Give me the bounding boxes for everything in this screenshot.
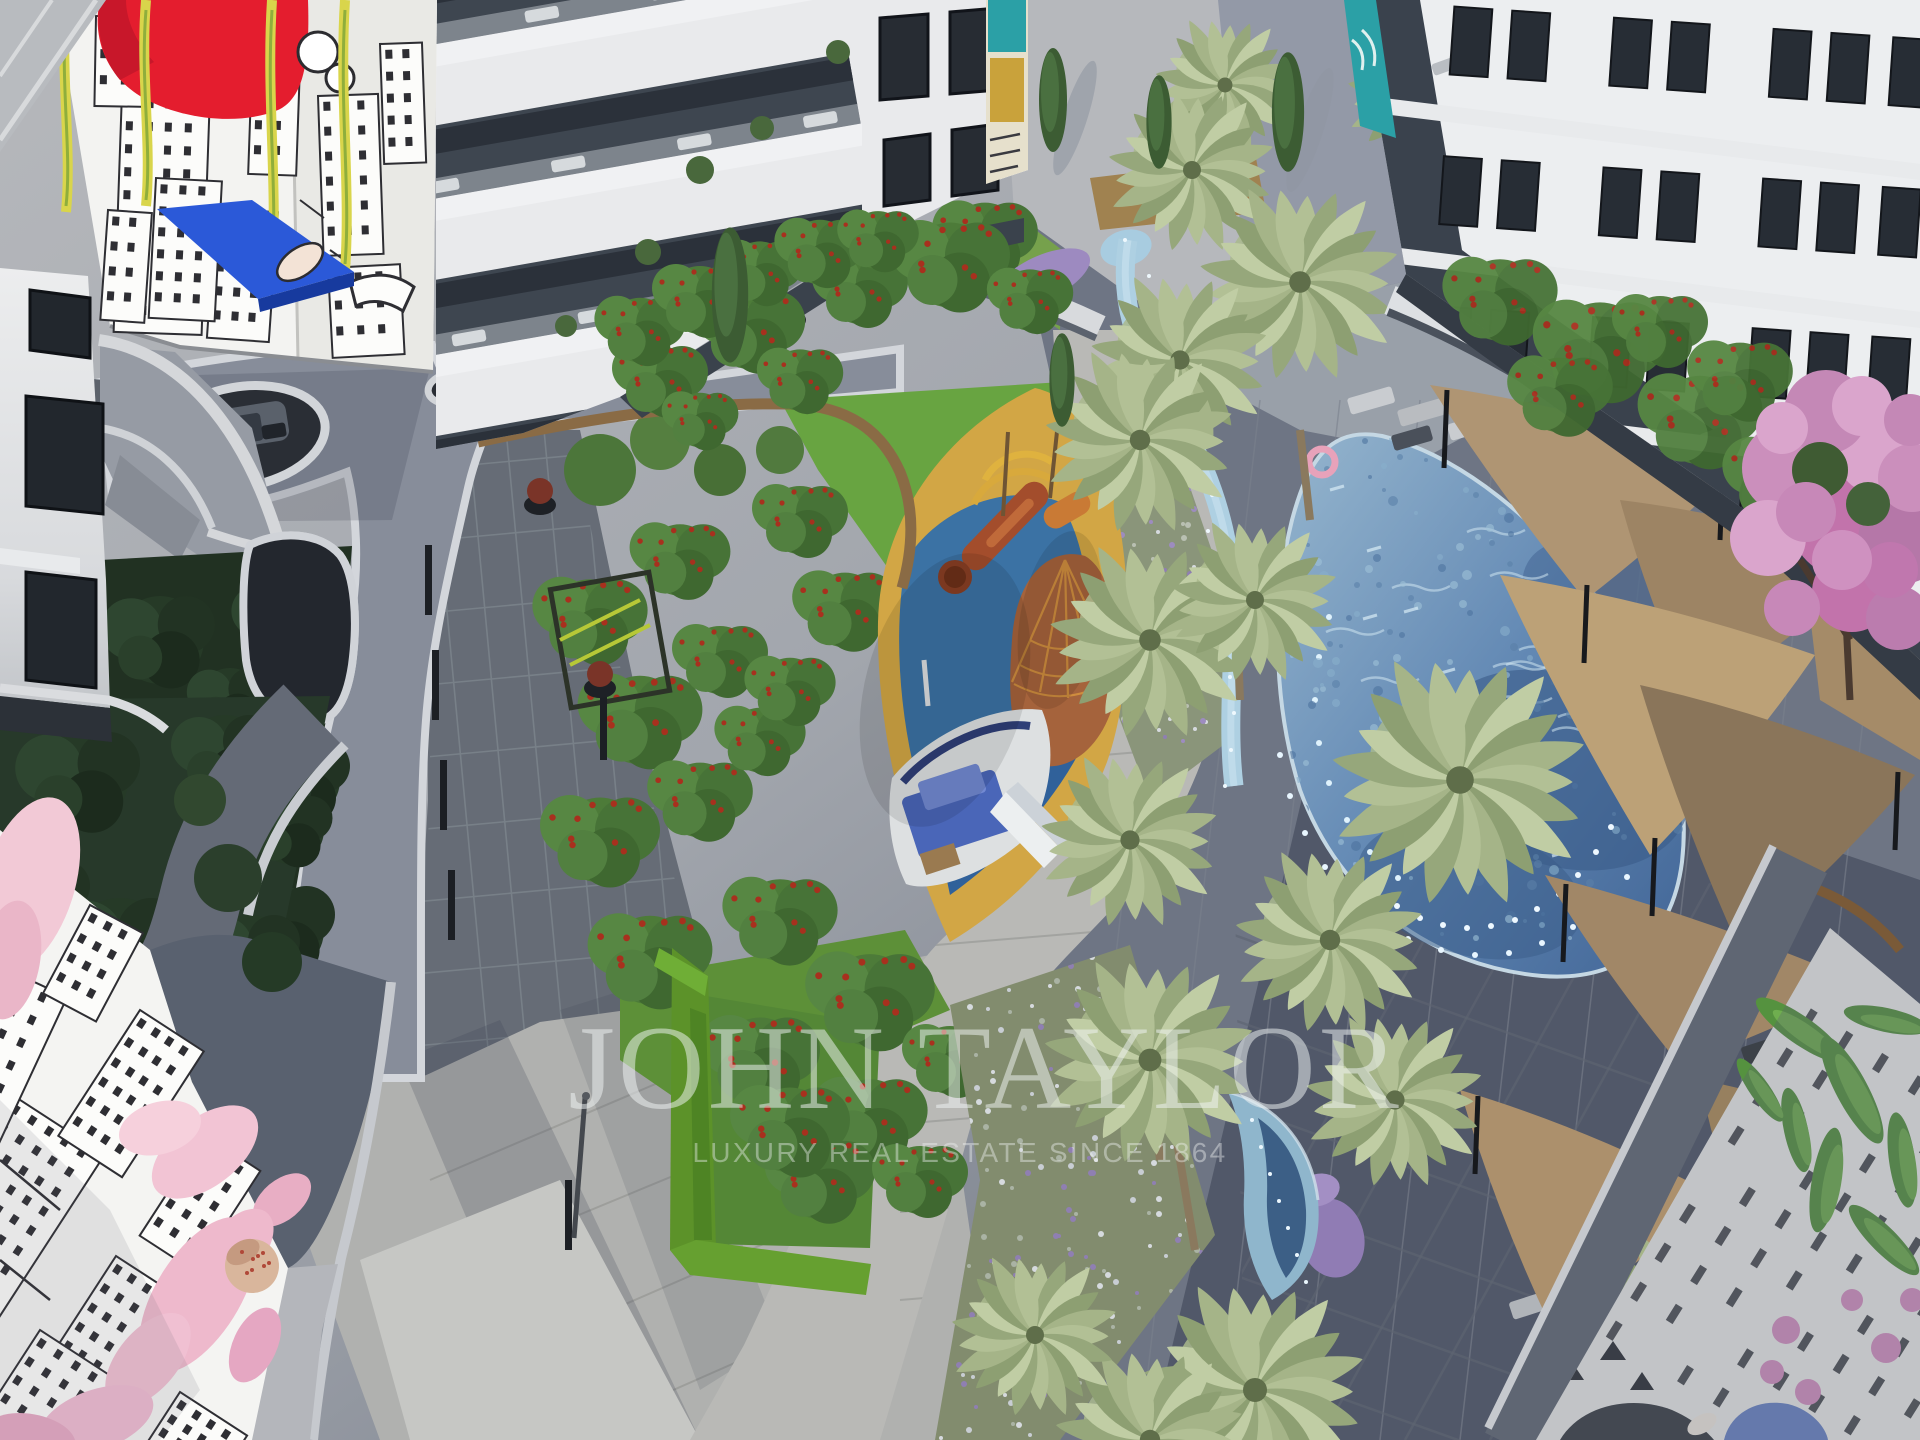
svg-text:LUXURY REAL ESTATE SINCE 1864: LUXURY REAL ESTATE SINCE 1864 — [692, 1137, 1227, 1168]
svg-text:JOHN TAYLOR: JOHN TAYLOR — [568, 1001, 1402, 1134]
